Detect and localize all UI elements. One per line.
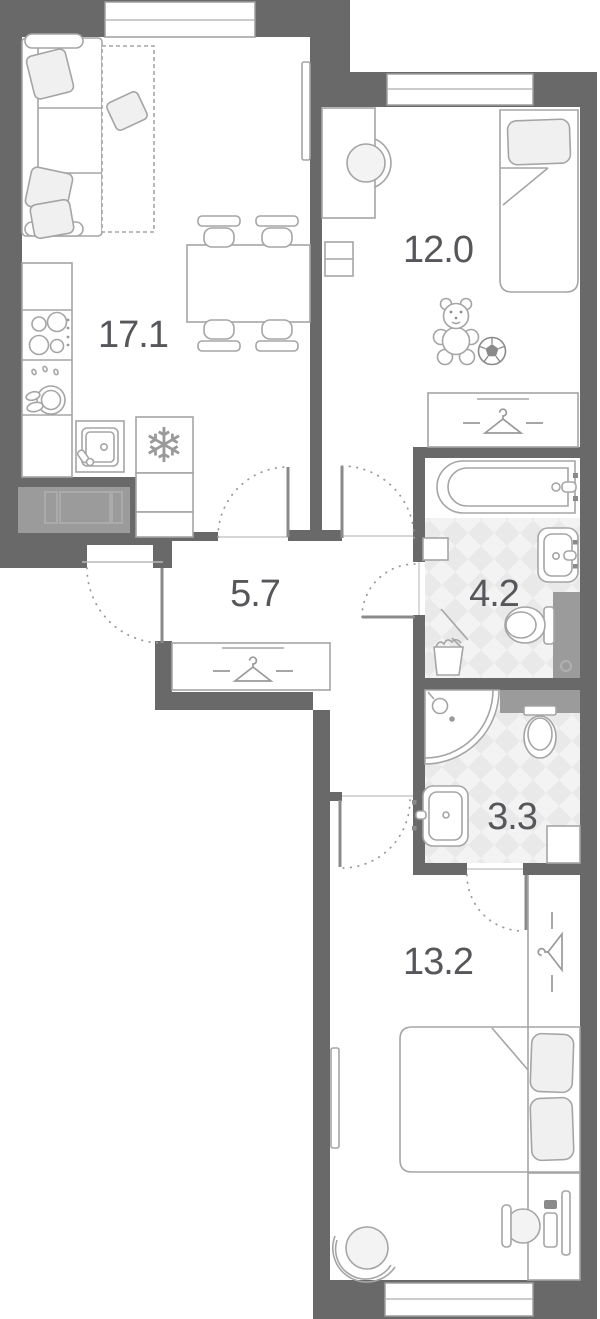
pillow xyxy=(530,1097,574,1160)
entry-service-block xyxy=(18,487,130,533)
door-entrance xyxy=(82,562,163,643)
armchair xyxy=(333,1227,395,1282)
tv-bedroom-large xyxy=(331,1048,339,1148)
hanger-icon xyxy=(538,912,562,992)
area-label-hallway: 5.7 xyxy=(230,573,280,615)
door-bathroom xyxy=(362,562,419,617)
door-niche xyxy=(423,538,448,560)
bathtub xyxy=(437,461,578,513)
window-bedroom-large xyxy=(385,1283,533,1316)
door-bedroom-small xyxy=(342,466,414,538)
snowflake-icon: ❄ xyxy=(144,418,184,474)
pillow xyxy=(530,1033,574,1092)
tv-living-room xyxy=(302,62,310,160)
nightstand xyxy=(325,242,353,276)
soccer-ball-icon xyxy=(479,338,506,365)
area-label-living-kitchen: 17.1 xyxy=(98,314,168,356)
dining-chair xyxy=(198,216,240,247)
wardrobe-hallway xyxy=(172,643,330,690)
bed-single xyxy=(500,110,578,292)
dining-table xyxy=(187,216,310,351)
toilet-shower-room xyxy=(524,706,556,758)
area-label-bathroom: 4.2 xyxy=(469,573,519,615)
floor-plan: ❄ 17.1 xyxy=(0,0,600,1319)
door-bedroom-large xyxy=(340,796,413,868)
pc-tower xyxy=(544,1200,557,1209)
dining-chair xyxy=(256,320,298,351)
door-kitchen xyxy=(218,467,288,537)
wardrobe-bedroom-large xyxy=(528,875,562,1030)
dining-chair xyxy=(198,320,240,351)
washing-machine xyxy=(547,826,580,863)
wardrobe-bedroom-small xyxy=(428,393,578,447)
room-living-kitchen: ❄ 17.1 xyxy=(22,34,310,537)
teddy-bear-icon xyxy=(434,299,479,365)
room-bedroom-large: 13.2 xyxy=(331,875,580,1282)
window-bedroom-small xyxy=(387,74,533,105)
room-bedroom-small: 12.0 xyxy=(322,108,578,447)
pillow xyxy=(507,119,570,165)
fridge: ❄ xyxy=(136,417,193,537)
pillow xyxy=(29,199,74,239)
dining-chair xyxy=(256,216,298,247)
area-label-toilet-shower: 3.3 xyxy=(487,796,537,838)
area-label-bedroom-small: 12.0 xyxy=(403,229,473,271)
sofa xyxy=(22,34,154,239)
area-label-bedroom-large: 13.2 xyxy=(403,941,473,983)
vent-shaft-bathroom xyxy=(553,592,580,678)
bathroom-sink xyxy=(538,528,578,582)
room-hallway: 5.7 xyxy=(172,573,330,690)
window-living-room xyxy=(105,2,255,37)
kitchen-sink xyxy=(76,421,124,472)
bed-double xyxy=(400,1027,580,1172)
monitor xyxy=(562,1191,570,1255)
door-toilet-shower xyxy=(467,869,526,931)
